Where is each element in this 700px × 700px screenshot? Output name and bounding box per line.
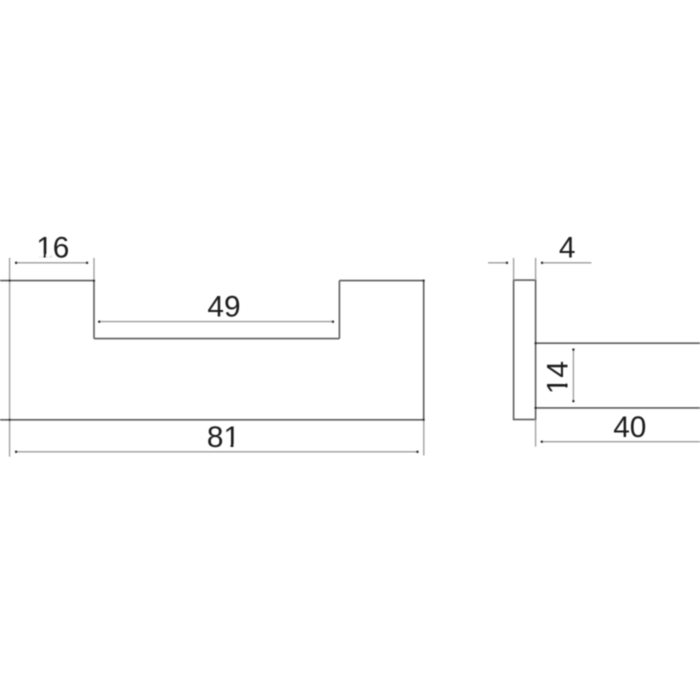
svg-text:14: 14 (541, 361, 574, 394)
svg-text:40: 40 (613, 411, 646, 444)
svg-text:16: 16 (36, 231, 69, 264)
svg-text:4: 4 (559, 231, 576, 264)
svg-text:81: 81 (207, 421, 240, 454)
svg-text:49: 49 (207, 290, 240, 323)
